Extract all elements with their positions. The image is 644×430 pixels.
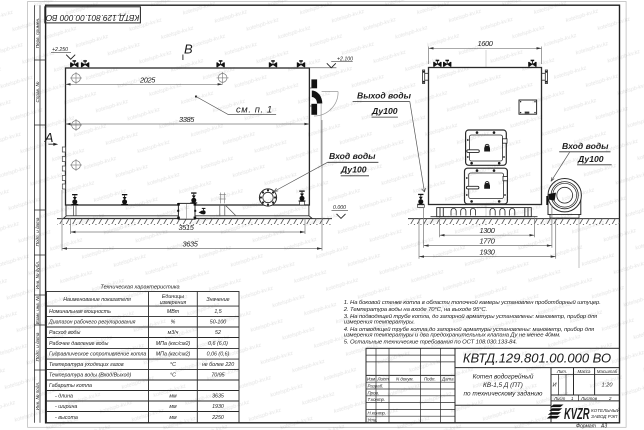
svg-text:Т.контр.: Т.контр. (368, 397, 386, 402)
svg-text:мм: мм (169, 394, 177, 400)
svg-text:Формат: Формат (576, 424, 596, 430)
svg-text:2: 2 (608, 396, 612, 401)
svg-text:1,5: 1,5 (214, 309, 221, 315)
svg-text:И: И (552, 383, 556, 389)
svg-text:Масштаб: Масштаб (597, 369, 618, 374)
svg-text:Диапазон рабочего регулировани: Диапазон рабочего регулирования (48, 320, 136, 326)
svg-text:Наименование показателя: Наименование показателя (63, 297, 131, 303)
svg-text:мм: мм (169, 404, 177, 410)
svg-text:МВт: МВт (167, 309, 180, 315)
svg-text:2250: 2250 (211, 415, 224, 421)
svg-text:КОТЕЛЬНЫЙ: КОТЕЛЬНЫЙ (591, 406, 621, 413)
svg-text:0,06 (0,6): 0,06 (0,6) (207, 352, 230, 358)
svg-text:52: 52 (215, 330, 221, 336)
svg-text:°С: °С (170, 362, 176, 368)
svg-text:%: % (171, 320, 176, 326)
svg-text:А3: А3 (600, 424, 607, 430)
svg-text:ЗАВОД РЭП: ЗАВОД РЭП (591, 414, 618, 419)
svg-text:Пров.: Пров. (368, 390, 380, 395)
svg-text:N докум.: N докум. (396, 377, 414, 382)
svg-text:Взам. инв. №: Взам. инв. № (35, 296, 40, 324)
svg-text:МПа (кгс/см2): МПа (кгс/см2) (156, 341, 191, 347)
svg-text:Подп.: Подп. (424, 377, 436, 382)
svg-text:мм: мм (169, 415, 177, 421)
svg-text:- длина: - длина (55, 394, 73, 400)
